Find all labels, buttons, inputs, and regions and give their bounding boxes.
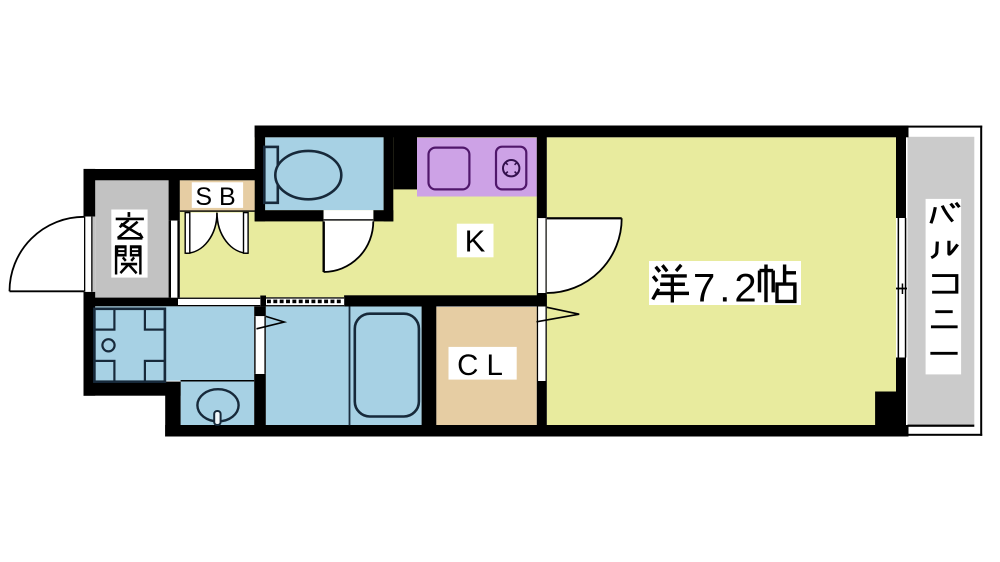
svg-text:7.2: 7.2	[693, 267, 761, 311]
svg-text:CL: CL	[457, 349, 511, 382]
svg-text:K: K	[465, 224, 486, 259]
svg-text:SB: SB	[195, 183, 242, 211]
